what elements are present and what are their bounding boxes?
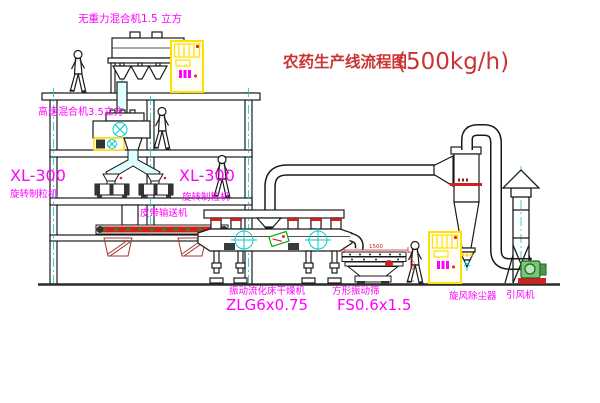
dimension-screen-length: 1500: [369, 244, 383, 250]
label-xl300-right: XL-300: [179, 166, 235, 185]
label-dryer-model: ZLG6x0.75: [226, 296, 308, 314]
building-column-right: [245, 93, 252, 284]
page-title-capacity: (500kg/h): [397, 49, 509, 75]
process-flow-diagram: 无重力混合机1.5 立方 农药生产线流程图 (500kg/h) 高速混合机3.5…: [0, 0, 600, 403]
label-granulator-left: 旋转制粒机: [10, 188, 58, 200]
dryer-exhaust-duct: [270, 170, 437, 211]
vibration-motor: [224, 243, 235, 250]
page-title: 农药生产线流程图: [282, 52, 407, 71]
cyclone-inlet: [434, 156, 453, 186]
label-xl300-left: XL-300: [10, 166, 66, 185]
worker-figure-1: [70, 51, 87, 93]
label-screen-model: FS0.6x1.5: [337, 296, 411, 314]
vibrating-screen: [342, 247, 414, 284]
label-belt-conveyor: 皮带输送机: [140, 207, 188, 219]
label-granulator-right: 旋转制粒机: [182, 191, 230, 203]
rotary-granulator-right: [139, 174, 173, 198]
dryer-legs: [210, 251, 341, 283]
label-fan: 引风机: [506, 289, 535, 301]
control-cabinet-2: [429, 232, 461, 283]
granulator-marker-dot: [120, 177, 123, 180]
vibration-motor: [288, 243, 299, 250]
control-cabinet-1: [171, 41, 203, 92]
worker-figure-2: [154, 108, 171, 150]
label-cyclone: 旋风除尘器: [449, 290, 497, 302]
label-gravity-free-mixer: 无重力混合机1.5 立方: [78, 12, 182, 25]
floor-beam-1: [42, 93, 260, 100]
rotary-granulator-left: [95, 174, 129, 198]
granulator-discharge-chute: [122, 205, 138, 225]
stack-rain-cap: [503, 170, 539, 188]
granulator-marker-dot: [164, 177, 167, 180]
dryer-feed-funnel: [257, 218, 281, 227]
label-high-speed-mixer: 高速混合机3.5立方: [38, 105, 124, 118]
mixer-discharge-cones: [113, 63, 167, 79]
dimension-screen-height: 345: [411, 260, 417, 271]
induced-draft-fan: [518, 261, 546, 284]
